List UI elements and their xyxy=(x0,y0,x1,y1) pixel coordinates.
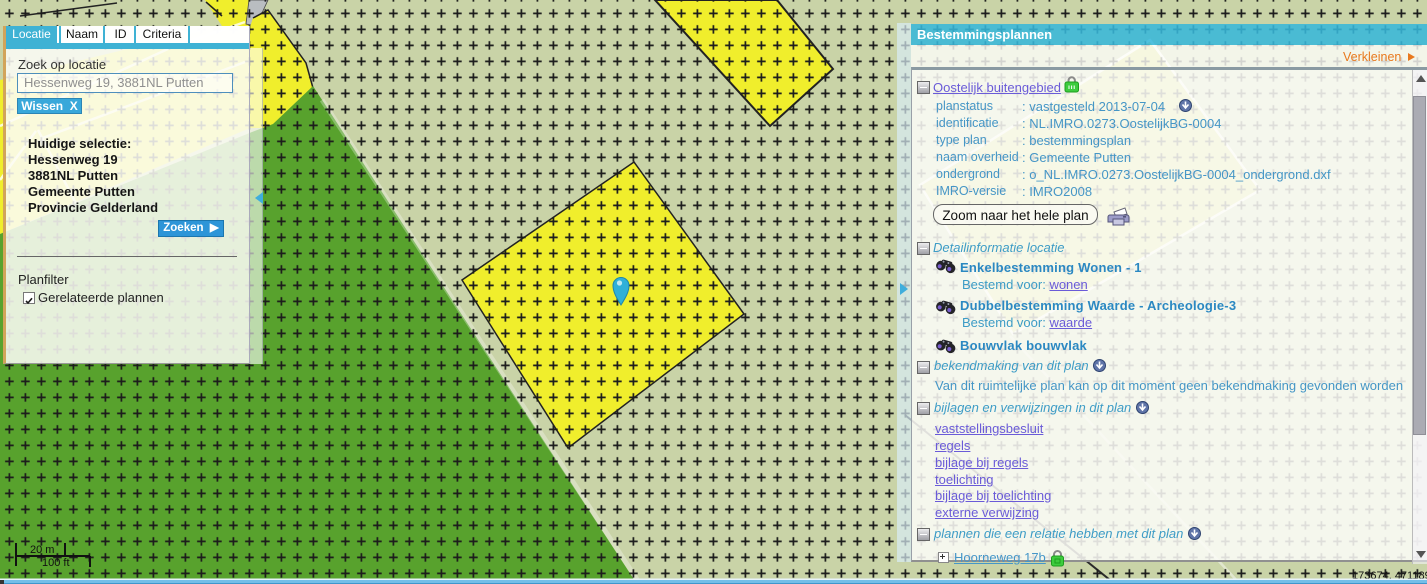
svg-text:100 ft: 100 ft xyxy=(42,557,70,569)
svg-text:20 m: 20 m xyxy=(30,544,54,556)
